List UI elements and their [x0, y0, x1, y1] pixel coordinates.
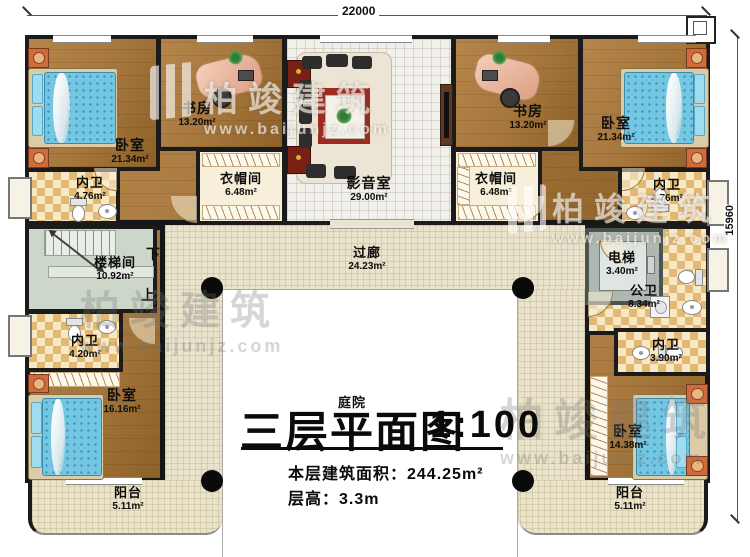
dimension-tick	[730, 514, 740, 524]
computer-monitor	[238, 70, 254, 81]
sofa-cushion	[302, 56, 322, 69]
nightstand	[28, 48, 49, 68]
window	[498, 35, 550, 43]
room-label-media-room: 影音室29.00m²	[328, 176, 410, 203]
room-label-bath-bl: 内卫4.20m²	[49, 334, 121, 360]
room-label-stairwell: 楼梯间10.92m²	[76, 256, 154, 282]
room-label-bath-tl: 内卫4.76m²	[55, 176, 125, 202]
room-label-bedroom-br: 卧室14.38m²	[589, 424, 667, 451]
pillow	[31, 402, 42, 434]
sofa-cushion	[299, 104, 312, 124]
window	[53, 35, 111, 43]
sofa-cushion	[299, 80, 312, 100]
sofa-cushion	[352, 56, 372, 69]
right-dimension-label: 15960	[724, 205, 736, 236]
bay-window	[8, 177, 32, 219]
top-dimension-label: 22000	[338, 4, 379, 18]
sink	[626, 206, 644, 220]
room-label-bedroom-bl: 卧室16.16m²	[85, 388, 159, 415]
closet-shelf	[202, 205, 280, 220]
dimension-tick	[730, 29, 740, 39]
closet-shelf	[202, 153, 280, 167]
pillow	[694, 74, 705, 104]
room-label-public-bath: 公卫8.34m²	[605, 284, 683, 310]
title-underline	[241, 447, 503, 450]
pillow	[32, 74, 43, 104]
stair-up-label: 上	[141, 285, 155, 305]
nightstand	[28, 148, 49, 168]
column	[512, 277, 534, 299]
sofa-cushion	[299, 128, 312, 148]
window	[197, 35, 253, 43]
sink	[98, 204, 117, 219]
room-label-elevator: 电梯3.40m²	[583, 251, 661, 277]
right-dimension-line	[737, 37, 738, 522]
room-label-study-right: 书房13.20m²	[491, 104, 565, 131]
column	[512, 470, 534, 492]
bed-blanket	[53, 73, 70, 143]
bay-window	[8, 315, 32, 357]
pillow	[694, 106, 705, 136]
toilet	[676, 268, 702, 285]
plant	[228, 50, 243, 65]
sofa-cushion	[326, 54, 348, 67]
room-label-study-left: 书房13.20m²	[160, 101, 234, 128]
nightstand	[686, 456, 708, 476]
nightstand	[686, 148, 707, 168]
closet-shelf	[458, 153, 536, 167]
room-label-balcony-left: 阳台5.11m²	[91, 486, 165, 512]
plan-scale: 1:100	[430, 404, 542, 447]
pillow	[31, 436, 42, 468]
floor-height-text: 层高：3.3m	[288, 485, 379, 509]
room-label-bath-tr: 内卫4.76m²	[631, 178, 703, 204]
window	[320, 35, 412, 43]
sink	[98, 320, 116, 334]
bay-window	[707, 248, 729, 292]
column	[201, 470, 223, 492]
room-label-bedroom-tl: 卧室21.34m²	[93, 138, 167, 165]
bed-blanket	[666, 73, 682, 143]
sofa-cushion	[306, 164, 326, 178]
bed-blanket	[51, 399, 65, 475]
pillow	[32, 106, 43, 136]
nightstand	[686, 48, 707, 68]
floor-area-text: 本层建筑面积：244.25m²	[288, 460, 484, 484]
room-label-bath-br: 内卫3.90m²	[630, 338, 702, 364]
column	[201, 277, 223, 299]
tv-screen	[444, 92, 449, 138]
nightstand	[686, 384, 708, 404]
plant	[492, 50, 507, 65]
computer-monitor	[482, 70, 498, 81]
bed-mattress	[44, 72, 116, 144]
sink	[682, 300, 702, 315]
media-room-opening	[330, 219, 414, 229]
plant	[336, 108, 352, 124]
room-label-bedroom-tr: 卧室21.34m²	[579, 116, 653, 143]
room-label-closet-right: 衣帽间6.48m²	[458, 172, 534, 198]
floor-plan-canvas: 22000 15960 下 上	[0, 0, 750, 557]
nightstand	[28, 374, 49, 393]
room-label-corridor: 过廊24.23m²	[328, 246, 406, 272]
room-label-balcony-right: 阳台5.11m²	[593, 486, 667, 512]
window	[638, 35, 696, 43]
pillow	[676, 402, 687, 434]
room-label-closet-left: 衣帽间6.48m²	[203, 172, 279, 198]
